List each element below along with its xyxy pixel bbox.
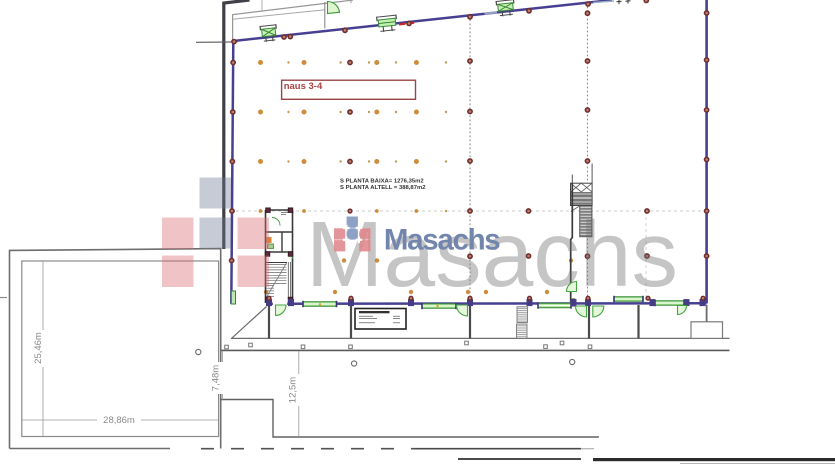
svg-text:25,46m: 25,46m bbox=[33, 332, 44, 364]
svg-text:7,48m: 7,48m bbox=[211, 365, 222, 391]
svg-text:28,86m: 28,86m bbox=[103, 415, 135, 426]
svg-text:S PLANTA ALTELL = 388,87m2: S PLANTA ALTELL = 388,87m2 bbox=[340, 185, 426, 191]
svg-text:12,5m: 12,5m bbox=[288, 377, 299, 403]
svg-text:S PLANTA BAIXA= 1276,35m2: S PLANTA BAIXA= 1276,35m2 bbox=[340, 179, 424, 185]
svg-text:naus 3-4: naus 3-4 bbox=[284, 81, 323, 92]
svg-text:Masachs: Masachs bbox=[384, 224, 500, 257]
